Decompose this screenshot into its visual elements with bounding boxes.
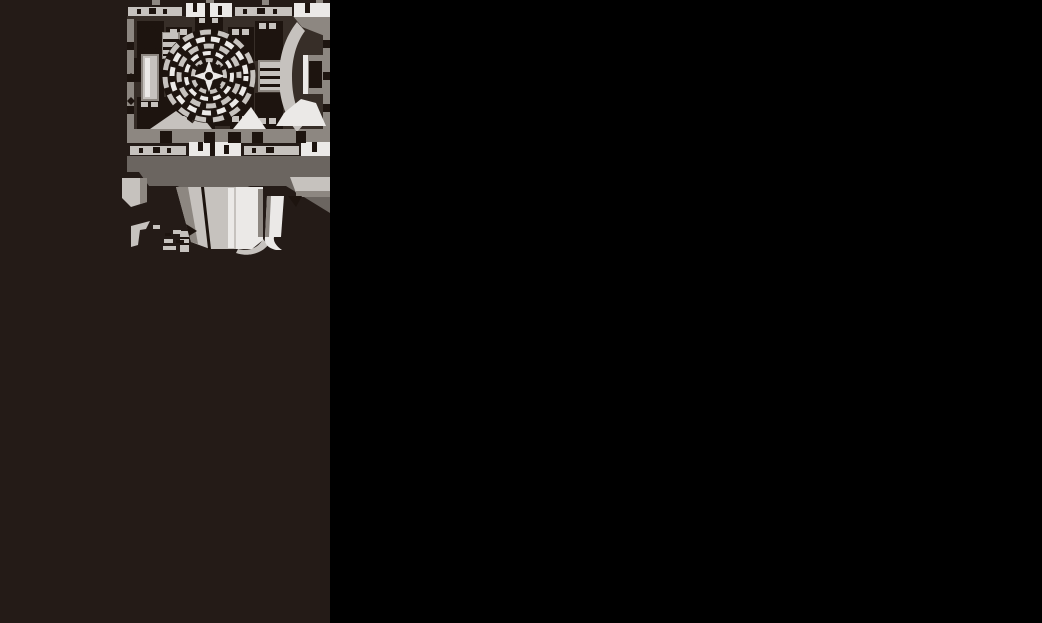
slot — [144, 26, 156, 53]
converter-assembly — [162, 29, 256, 123]
right-bar — [290, 177, 330, 193]
canvas — [0, 0, 1042, 623]
hub-center — [204, 71, 214, 81]
technical-drawing — [0, 0, 1042, 623]
